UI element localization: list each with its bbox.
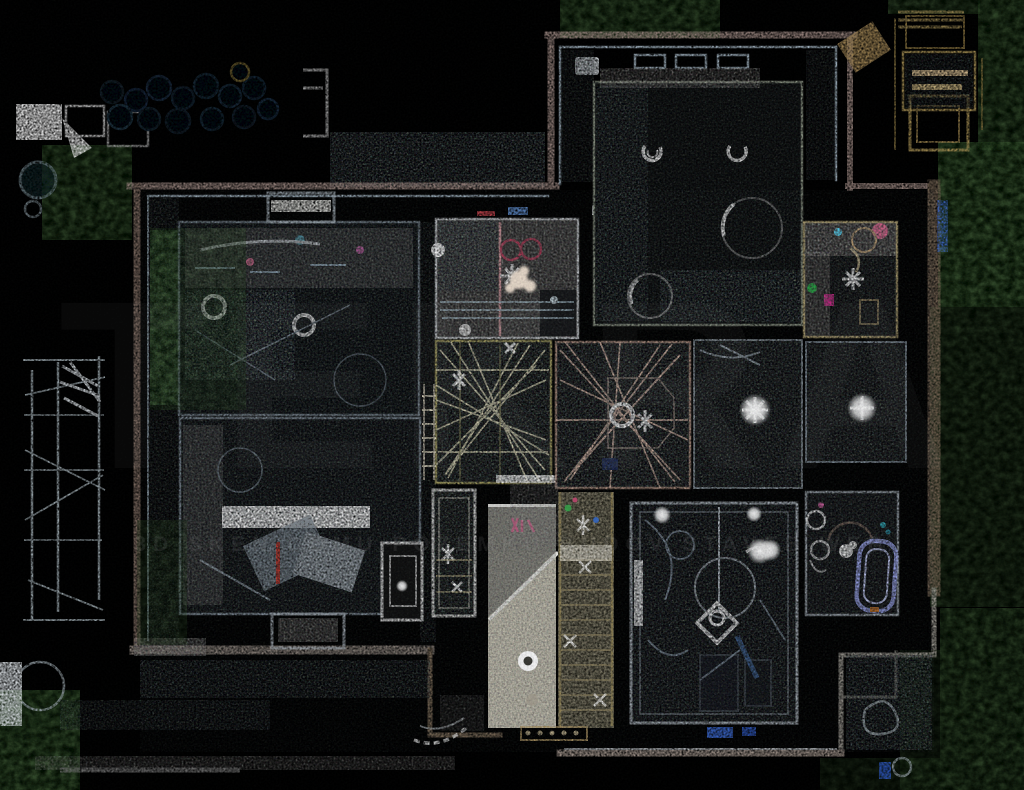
svg-text:TEKRA: TEKRA (59, 251, 966, 519)
svg-text:3D SKEN DOMU POZEMKU BUDOV STA: 3D SKEN DOMU POZEMKU BUDOV STAVEB WEB (134, 533, 889, 556)
